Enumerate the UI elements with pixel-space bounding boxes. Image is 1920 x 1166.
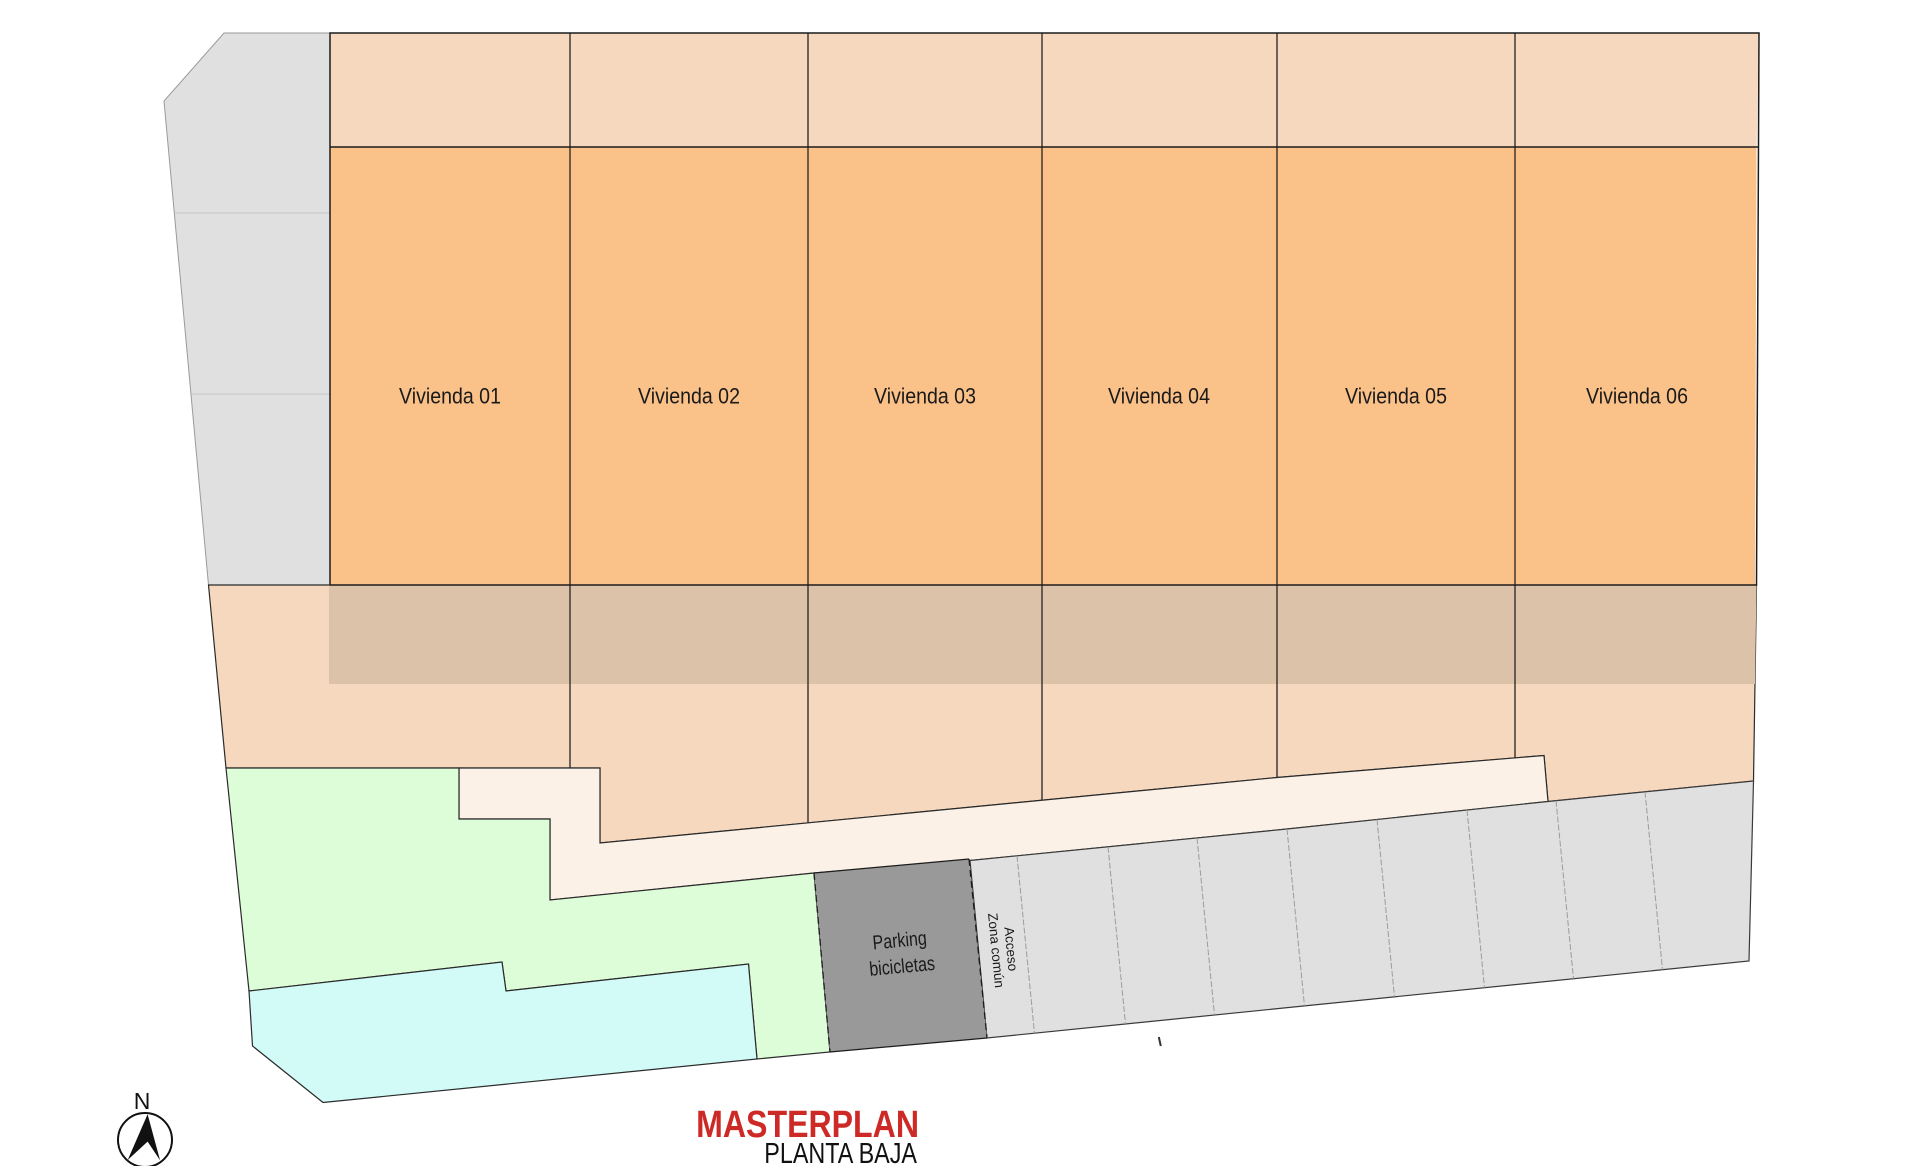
svg-text:Vivienda 03: Vivienda 03 <box>874 384 976 409</box>
svg-text:Vivienda 04: Vivienda 04 <box>1108 384 1210 409</box>
svg-text:PLANTA BAJA: PLANTA BAJA <box>764 1137 917 1166</box>
svg-text:Vivienda 02: Vivienda 02 <box>638 384 740 409</box>
svg-text:Vivienda 05: Vivienda 05 <box>1345 384 1447 409</box>
svg-text:Vivienda 01: Vivienda 01 <box>399 384 501 409</box>
svg-text:N: N <box>134 1088 151 1114</box>
svg-text:Vivienda 06: Vivienda 06 <box>1586 384 1688 409</box>
